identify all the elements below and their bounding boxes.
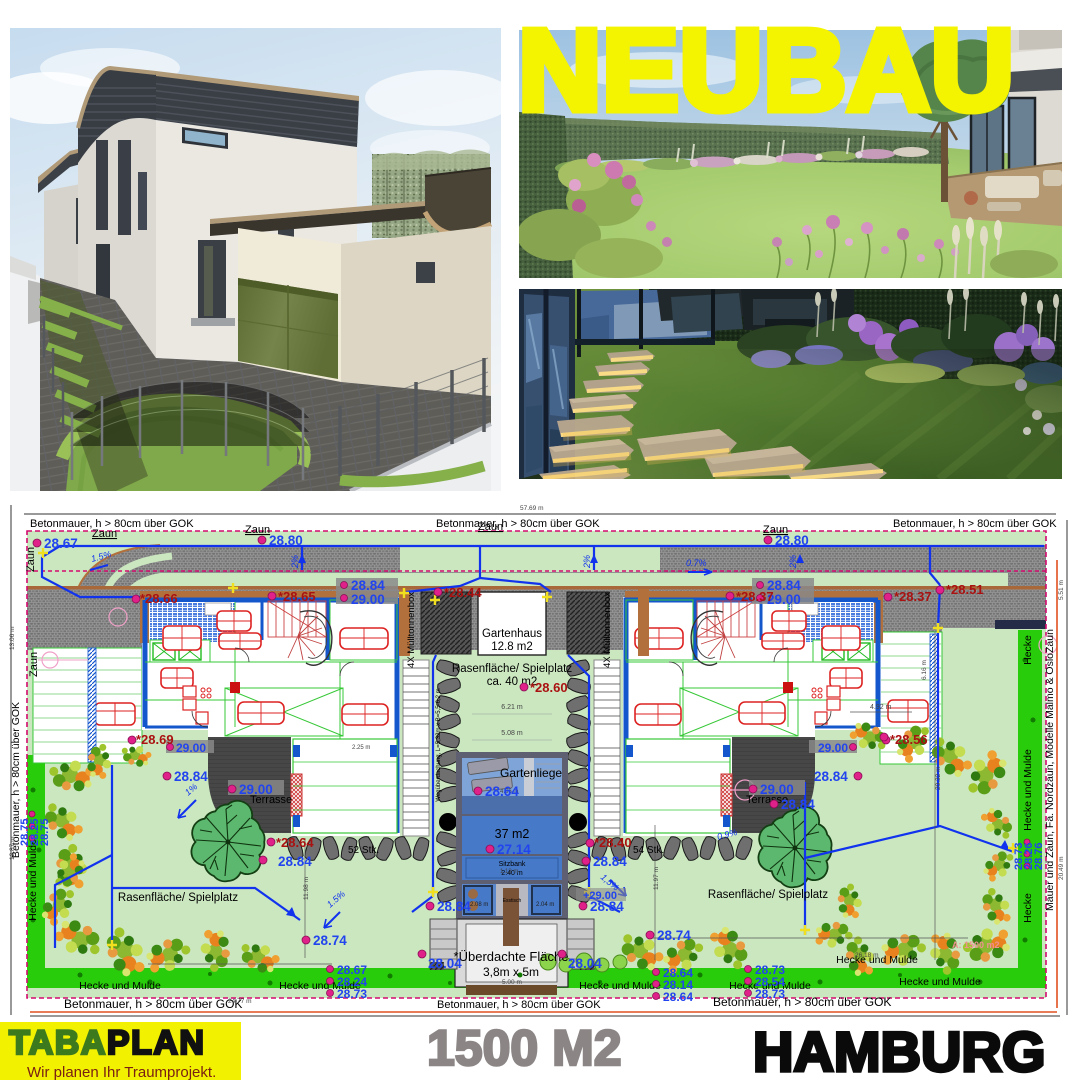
svg-text:Hecke und Mulde: Hecke und Mulde [579,980,661,992]
svg-text:5.51 m: 5.51 m [1058,580,1065,600]
svg-text:54 Stk.: 54 Stk. [633,845,664,856]
svg-text:12.8 m2: 12.8 m2 [491,641,533,653]
svg-text:Mauer und Zaun, Fa. Nordzaun,: Mauer und Zaun, Fa. Nordzaun, Modelle Ma… [1044,629,1056,911]
svg-text:Hecke: Hecke [1022,893,1034,923]
svg-text:*28.60: *28.60 [530,680,568,695]
svg-text:28.80: 28.80 [269,533,303,548]
svg-text:Sitzbank: Sitzbank [499,861,526,868]
svg-text:Hecke und Mulde: Hecke und Mulde [1022,749,1034,831]
svg-text:6.21 m: 6.21 m [501,704,523,711]
svg-text:28.04: 28.04 [568,956,602,971]
svg-text:4.92 m: 4.92 m [870,704,892,711]
svg-text:Hecke: Hecke [1022,635,1034,665]
svg-text:5.08 m: 5.08 m [501,730,523,737]
svg-text:29.00: 29.00 [818,741,848,755]
svg-text:Rasenfläche/ Spielplatz: Rasenfläche/ Spielplatz [452,663,572,675]
svg-text:*28.66: *28.66 [140,591,178,606]
svg-text:20.49 m: 20.49 m [1058,857,1065,881]
svg-text:2.25 m: 2.25 m [352,745,370,751]
svg-text:2%: 2% [290,555,300,569]
svg-text:26.18 m: 26.18 m [855,952,879,959]
svg-text:*28.69: *28.69 [136,732,174,747]
svg-text:28.84: 28.84 [593,854,627,869]
svg-text:4X Mülltonnenbox: 4X Mülltonnenbox [602,592,613,668]
svg-text:Rasenfläche/ Spielplatz: Rasenfläche/ Spielplatz [118,892,238,904]
svg-text:Zaun: Zaun [92,528,117,540]
svg-text:Hecke und Mulde: Hecke und Mulde [899,976,981,988]
svg-text:A: 1500 m2: A: 1500 m2 [952,940,1000,950]
svg-text:28.74: 28.74 [657,928,691,943]
svg-text:2.08 m: 2.08 m [470,902,488,908]
svg-text:*28.64: *28.64 [276,835,314,850]
svg-text:29.00: 29.00 [176,741,206,755]
svg-text:*28.44: *28.44 [444,585,482,600]
svg-text:57.69 m: 57.69 m [520,505,544,512]
svg-text:28.67: 28.67 [44,536,78,551]
svg-text:37 m2: 37 m2 [495,827,530,841]
svg-text:28.74: 28.74 [313,933,347,948]
svg-text:*28.37: *28.37 [894,589,932,604]
svg-text:29.00: 29.00 [239,782,273,797]
svg-text:Rasenfläche/ Spielplatz: Rasenfläche/ Spielplatz [708,889,828,901]
svg-text:28.84: 28.84 [590,899,624,914]
svg-text:52 Stk.: 52 Stk. [348,845,379,856]
svg-text:11.98 m: 11.98 m [303,877,310,900]
svg-text:24.77 m: 24.77 m [228,998,252,1005]
svg-text:1.13 m: 1.13 m [500,869,518,875]
svg-text:11.97 m: 11.97 m [653,867,660,890]
svg-text:27.14: 27.14 [497,842,531,857]
svg-text:3,8m x 5m: 3,8m x 5m [483,965,539,979]
svg-text:*28.65: *28.65 [278,589,316,604]
svg-text:28.84: 28.84 [351,578,385,593]
svg-text:*Überdachte Fläche: *Überdachte Fläche [454,949,569,964]
svg-text:Hecke und Mulde: Hecke und Mulde [27,839,39,921]
svg-text:28.64: 28.64 [485,784,519,799]
svg-text:Esstisch: Esstisch [503,898,522,904]
svg-text:Betonmauer, h > 80cm über GOK: Betonmauer, h > 80cm über GOK [436,518,600,530]
svg-text:29.00: 29.00 [351,592,385,607]
svg-text:28.84: 28.84 [278,854,312,869]
svg-text:Zaun: Zaun [478,521,503,533]
svg-text:Zaun: Zaun [245,524,270,536]
svg-text:Wegüberdachung, L=5,32m x B=5,: Wegüberdachung, L=5,32m x B=5,5-6,2 m [436,688,442,801]
svg-text:28.04: 28.04 [428,956,462,971]
svg-text:*28.51: *28.51 [946,582,984,597]
svg-text:28.73: 28.73 [337,987,367,1001]
svg-text:Hecke und Mulde: Hecke und Mulde [79,980,161,992]
svg-text:20.32 m: 20.32 m [935,767,942,791]
svg-text:2%: 2% [582,555,592,569]
svg-text:*28.56: *28.56 [890,732,928,747]
svg-text:6.16 m: 6.16 m [921,660,928,680]
svg-text:12.87 m: 12.87 m [9,837,16,861]
svg-text:28.76: 28.76 [1033,842,1045,870]
svg-text:28.75: 28.75 [39,818,51,846]
svg-text:Gartenliege: Gartenliege [500,766,562,780]
svg-text:*28.37: *28.37 [736,589,774,604]
svg-text:28.84: 28.84 [814,769,848,784]
svg-text:Zaun: Zaun [25,547,37,572]
svg-text:28.84: 28.84 [174,769,208,784]
svg-text:0.7%: 0.7% [686,558,707,568]
svg-text:Betonmauer, h > 80cm über GOK: Betonmauer, h > 80cm über GOK [713,995,891,1009]
svg-text:28.73: 28.73 [755,987,785,1001]
svg-text:Betonmauer, h > 80cm über GOK: Betonmauer, h > 80cm über GOK [437,999,601,1011]
svg-text:28.84: 28.84 [781,797,815,812]
svg-text:*28.40: *28.40 [594,835,632,850]
svg-text:2%: 2% [788,555,798,569]
svg-text:Betonmauer, h > 80cm über GOK: Betonmauer, h > 80cm über GOK [893,518,1057,530]
svg-text:2.04 m: 2.04 m [536,902,554,908]
svg-text:Zaun: Zaun [28,652,40,677]
svg-text:4X Mülltonnenbox: 4X Mülltonnenbox [406,592,417,668]
svg-text:28.84: 28.84 [437,899,471,914]
svg-text:5.00 m: 5.00 m [502,979,522,986]
svg-text:28.64: 28.64 [663,990,693,1004]
svg-text:28.80: 28.80 [775,533,809,548]
svg-text:29.00: 29.00 [760,782,794,797]
svg-text:Gartenhaus: Gartenhaus [482,628,542,640]
svg-text:Betonmauer, h > 80cm über GOK: Betonmauer, h > 80cm über GOK [64,997,242,1011]
svg-text:13.06 m: 13.06 m [9,627,16,651]
